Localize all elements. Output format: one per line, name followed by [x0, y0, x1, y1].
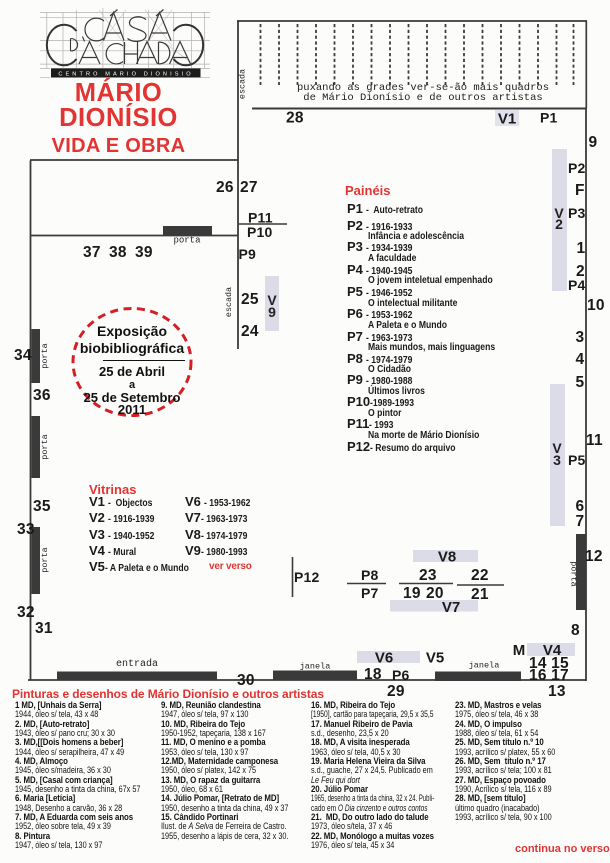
svg-text:11: 11 [586, 432, 603, 449]
svg-text:V1: V1 [498, 111, 516, 128]
svg-text:P9: P9 [239, 246, 257, 262]
svg-text:P7: P7 [361, 585, 379, 601]
svg-text:36: 36 [33, 387, 51, 404]
svg-text:P1: P1 [540, 110, 558, 126]
svg-text:janela: janela [469, 661, 500, 671]
svg-text:P4: P4 [568, 277, 586, 293]
svg-text:7: 7 [576, 513, 585, 530]
svg-text:CENTRO MARIO DIONISIO: CENTRO MARIO DIONISIO [58, 72, 193, 78]
svg-text:19: 19 [403, 585, 421, 602]
svg-text:P8: P8 [361, 567, 379, 583]
svg-text:M: M [513, 642, 526, 659]
svg-text:16 17: 16 17 [529, 667, 569, 684]
svg-text:25: 25 [241, 291, 259, 308]
svg-text:9: 9 [268, 304, 276, 320]
svg-text:porta: porta [569, 561, 579, 587]
svg-text:33: 33 [17, 521, 35, 538]
svg-text:P3: P3 [568, 205, 586, 221]
svg-text:porta: porta [40, 434, 50, 460]
svg-text:4: 4 [576, 351, 585, 368]
svg-text:32: 32 [17, 604, 35, 621]
svg-text:escada: escada [224, 287, 234, 317]
svg-text:18: 18 [364, 666, 382, 683]
svg-text:1: 1 [577, 240, 586, 257]
svg-text:5: 5 [576, 374, 585, 391]
svg-text:38: 38 [109, 244, 127, 261]
svg-text:3: 3 [553, 452, 561, 468]
svg-text:P2: P2 [568, 160, 586, 176]
svg-text:F: F [575, 182, 585, 199]
svg-text:P10: P10 [247, 224, 273, 240]
svg-text:12: 12 [585, 548, 603, 565]
svg-text:28: 28 [286, 110, 304, 127]
svg-text:P6: P6 [392, 667, 410, 683]
svg-text:janela: janela [300, 662, 331, 672]
svg-text:10: 10 [587, 297, 605, 314]
svg-text:escada: escada [238, 69, 248, 99]
svg-text:3: 3 [576, 329, 585, 346]
svg-text:P5: P5 [568, 452, 586, 468]
svg-text:20: 20 [426, 585, 444, 602]
svg-text:V7: V7 [442, 599, 460, 616]
svg-text:2: 2 [555, 216, 563, 232]
svg-text:39: 39 [135, 244, 153, 261]
svg-text:31: 31 [35, 620, 53, 637]
svg-text:V5: V5 [426, 650, 444, 667]
svg-text:29: 29 [387, 683, 405, 700]
svg-text:9: 9 [589, 134, 598, 151]
svg-text:24: 24 [241, 323, 259, 340]
svg-text:V6: V6 [375, 650, 393, 667]
svg-text:26: 26 [216, 179, 234, 196]
svg-text:23: 23 [419, 567, 437, 584]
svg-text:22: 22 [471, 567, 489, 584]
svg-text:8: 8 [571, 622, 580, 639]
svg-text:35: 35 [33, 498, 51, 515]
svg-text:27: 27 [240, 179, 258, 196]
svg-text:21: 21 [471, 586, 489, 603]
svg-text:P12: P12 [294, 569, 320, 585]
svg-text:porta: porta [40, 547, 50, 573]
svg-text:entrada: entrada [116, 658, 158, 670]
svg-text:porta: porta [40, 343, 50, 369]
svg-text:37: 37 [83, 244, 101, 261]
svg-text:34: 34 [14, 347, 32, 364]
svg-text:porta: porta [173, 236, 201, 246]
svg-text:13: 13 [548, 683, 566, 700]
svg-text:V8: V8 [438, 549, 456, 566]
